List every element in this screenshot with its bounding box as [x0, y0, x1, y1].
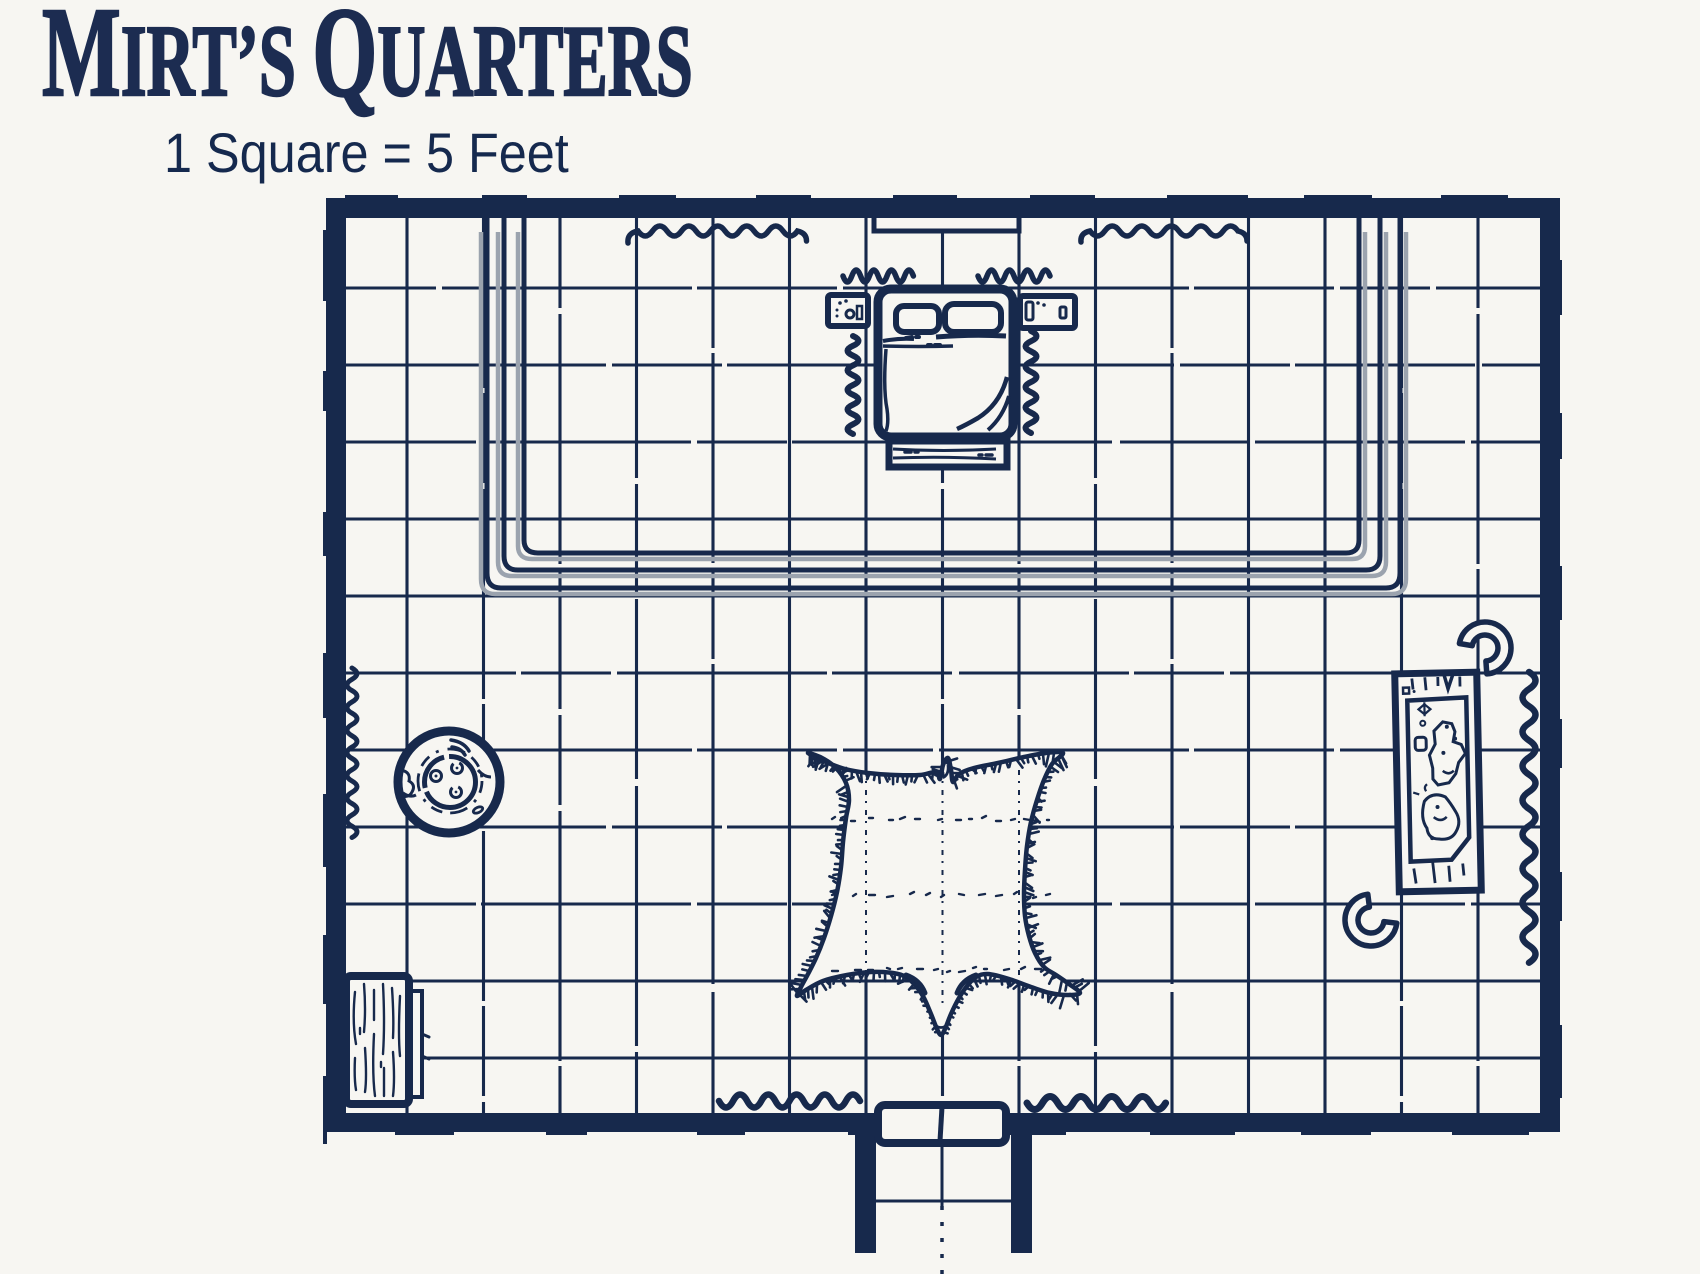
svg-text:MIRT’S QUARTERS: MIRT’S QUARTERS [42, 0, 693, 123]
svg-text:1 Square = 5 Feet: 1 Square = 5 Feet [164, 123, 569, 185]
